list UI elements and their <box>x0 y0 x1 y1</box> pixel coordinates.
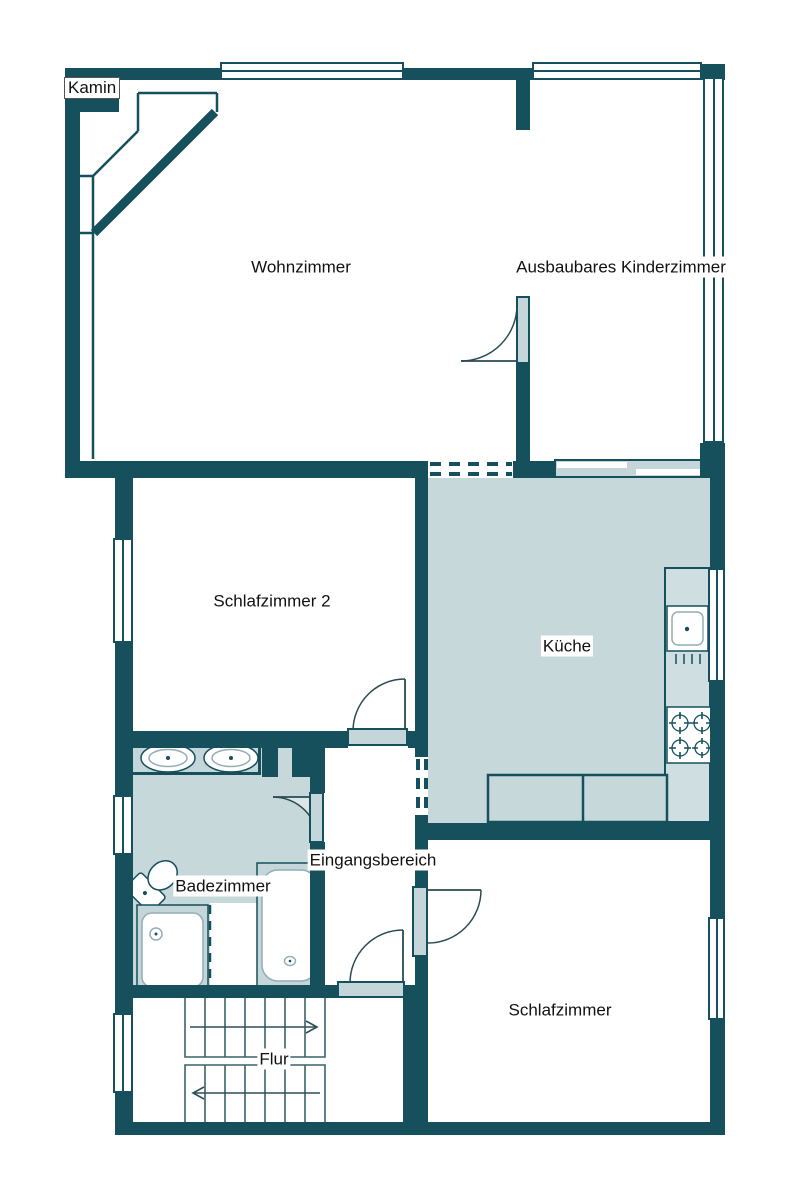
room-label-schlafzimmer2: Schlafzimmer 2 <box>211 591 332 612</box>
chimney-block <box>80 98 119 112</box>
door-bedroom2 <box>353 679 405 731</box>
room-label-kinderzimmer: Ausbaubares Kinderzimmer <box>514 257 728 278</box>
window-livingroom-top <box>220 62 404 80</box>
open-passage-livingroom-kitchen <box>430 464 512 474</box>
door-panel-bedroom2 <box>347 728 408 746</box>
wall-horizontal-mid <box>513 461 554 478</box>
door-hall-corridor <box>350 930 403 983</box>
open-passage-hall-kitchen <box>418 759 426 813</box>
wall-right-lower-3 <box>710 1020 725 1135</box>
room-label-kueche: Küche <box>541 636 593 657</box>
window-bedroom-right <box>708 917 725 1020</box>
window-kitchen-right <box>708 568 725 682</box>
room-label-schlafzimmer: Schlafzimmer <box>507 1000 614 1021</box>
door-panel-bathroom <box>309 792 324 843</box>
staircase <box>185 998 325 1122</box>
door-panel-bedroom <box>412 886 428 957</box>
shower <box>137 905 210 995</box>
wall-left-upper <box>65 68 80 463</box>
window-childroom-top <box>532 62 702 80</box>
door-panel-hall <box>337 981 405 998</box>
wall-bath-ne-block <box>292 748 325 777</box>
stove <box>667 707 713 763</box>
floor-plan: Kamin Wohnzimmer Ausbaubares Kinderzimme… <box>0 0 789 1200</box>
wall-bedroom2-south <box>115 731 348 748</box>
room-label-wohnzimmer: Wohnzimmer <box>249 257 353 278</box>
wall-bath-south-stub <box>405 985 417 998</box>
wall-bottom <box>115 1122 725 1135</box>
kitchen-counter-bottom <box>488 775 667 822</box>
wall-kitchen-south <box>415 823 725 840</box>
wall-right-lower-2 <box>710 682 725 917</box>
wall-kitchen-west-1 <box>415 476 428 757</box>
wall-bath-south <box>115 985 338 998</box>
vanity-sink-right <box>204 744 258 772</box>
window-bedroom2-left <box>113 538 133 643</box>
stair-arrow-down <box>193 1087 320 1099</box>
room-label-flur: Flur <box>257 1049 290 1070</box>
room-label-eingangsbereich: Eingangsbereich <box>308 850 439 871</box>
wall-bath-east-upper <box>310 777 325 793</box>
wall-left-lower-1 <box>115 461 133 538</box>
wall-left-lower-2 <box>115 643 133 795</box>
door-panel-livingroom-childroom <box>516 296 530 364</box>
room-label-badezimmer: Badezimmer <box>173 876 272 897</box>
wall-corridor-east <box>403 998 415 1122</box>
wall-kitchen-west-3 <box>415 955 428 1122</box>
interior-window-pane-left <box>557 462 627 468</box>
wall-divider-top <box>516 80 530 130</box>
wall-bedroom2-south-stub <box>408 731 428 748</box>
room-label-kamin: Kamin <box>64 77 120 99</box>
vanity-sink-left <box>141 744 195 772</box>
stair-arrow-up <box>190 1021 317 1033</box>
wall-top-mid <box>404 68 534 80</box>
interior-window-pane-right <box>636 469 700 475</box>
door-bedroom <box>428 890 481 943</box>
wall-divider-bottom <box>516 363 530 463</box>
door-livingroom-childroom <box>461 305 517 361</box>
fireplace-structure <box>80 93 217 459</box>
wall-right-lower-1 <box>710 461 725 568</box>
window-hall-left <box>113 1013 133 1093</box>
window-bathroom-left <box>113 795 133 855</box>
wall-bath-stub <box>262 731 278 777</box>
